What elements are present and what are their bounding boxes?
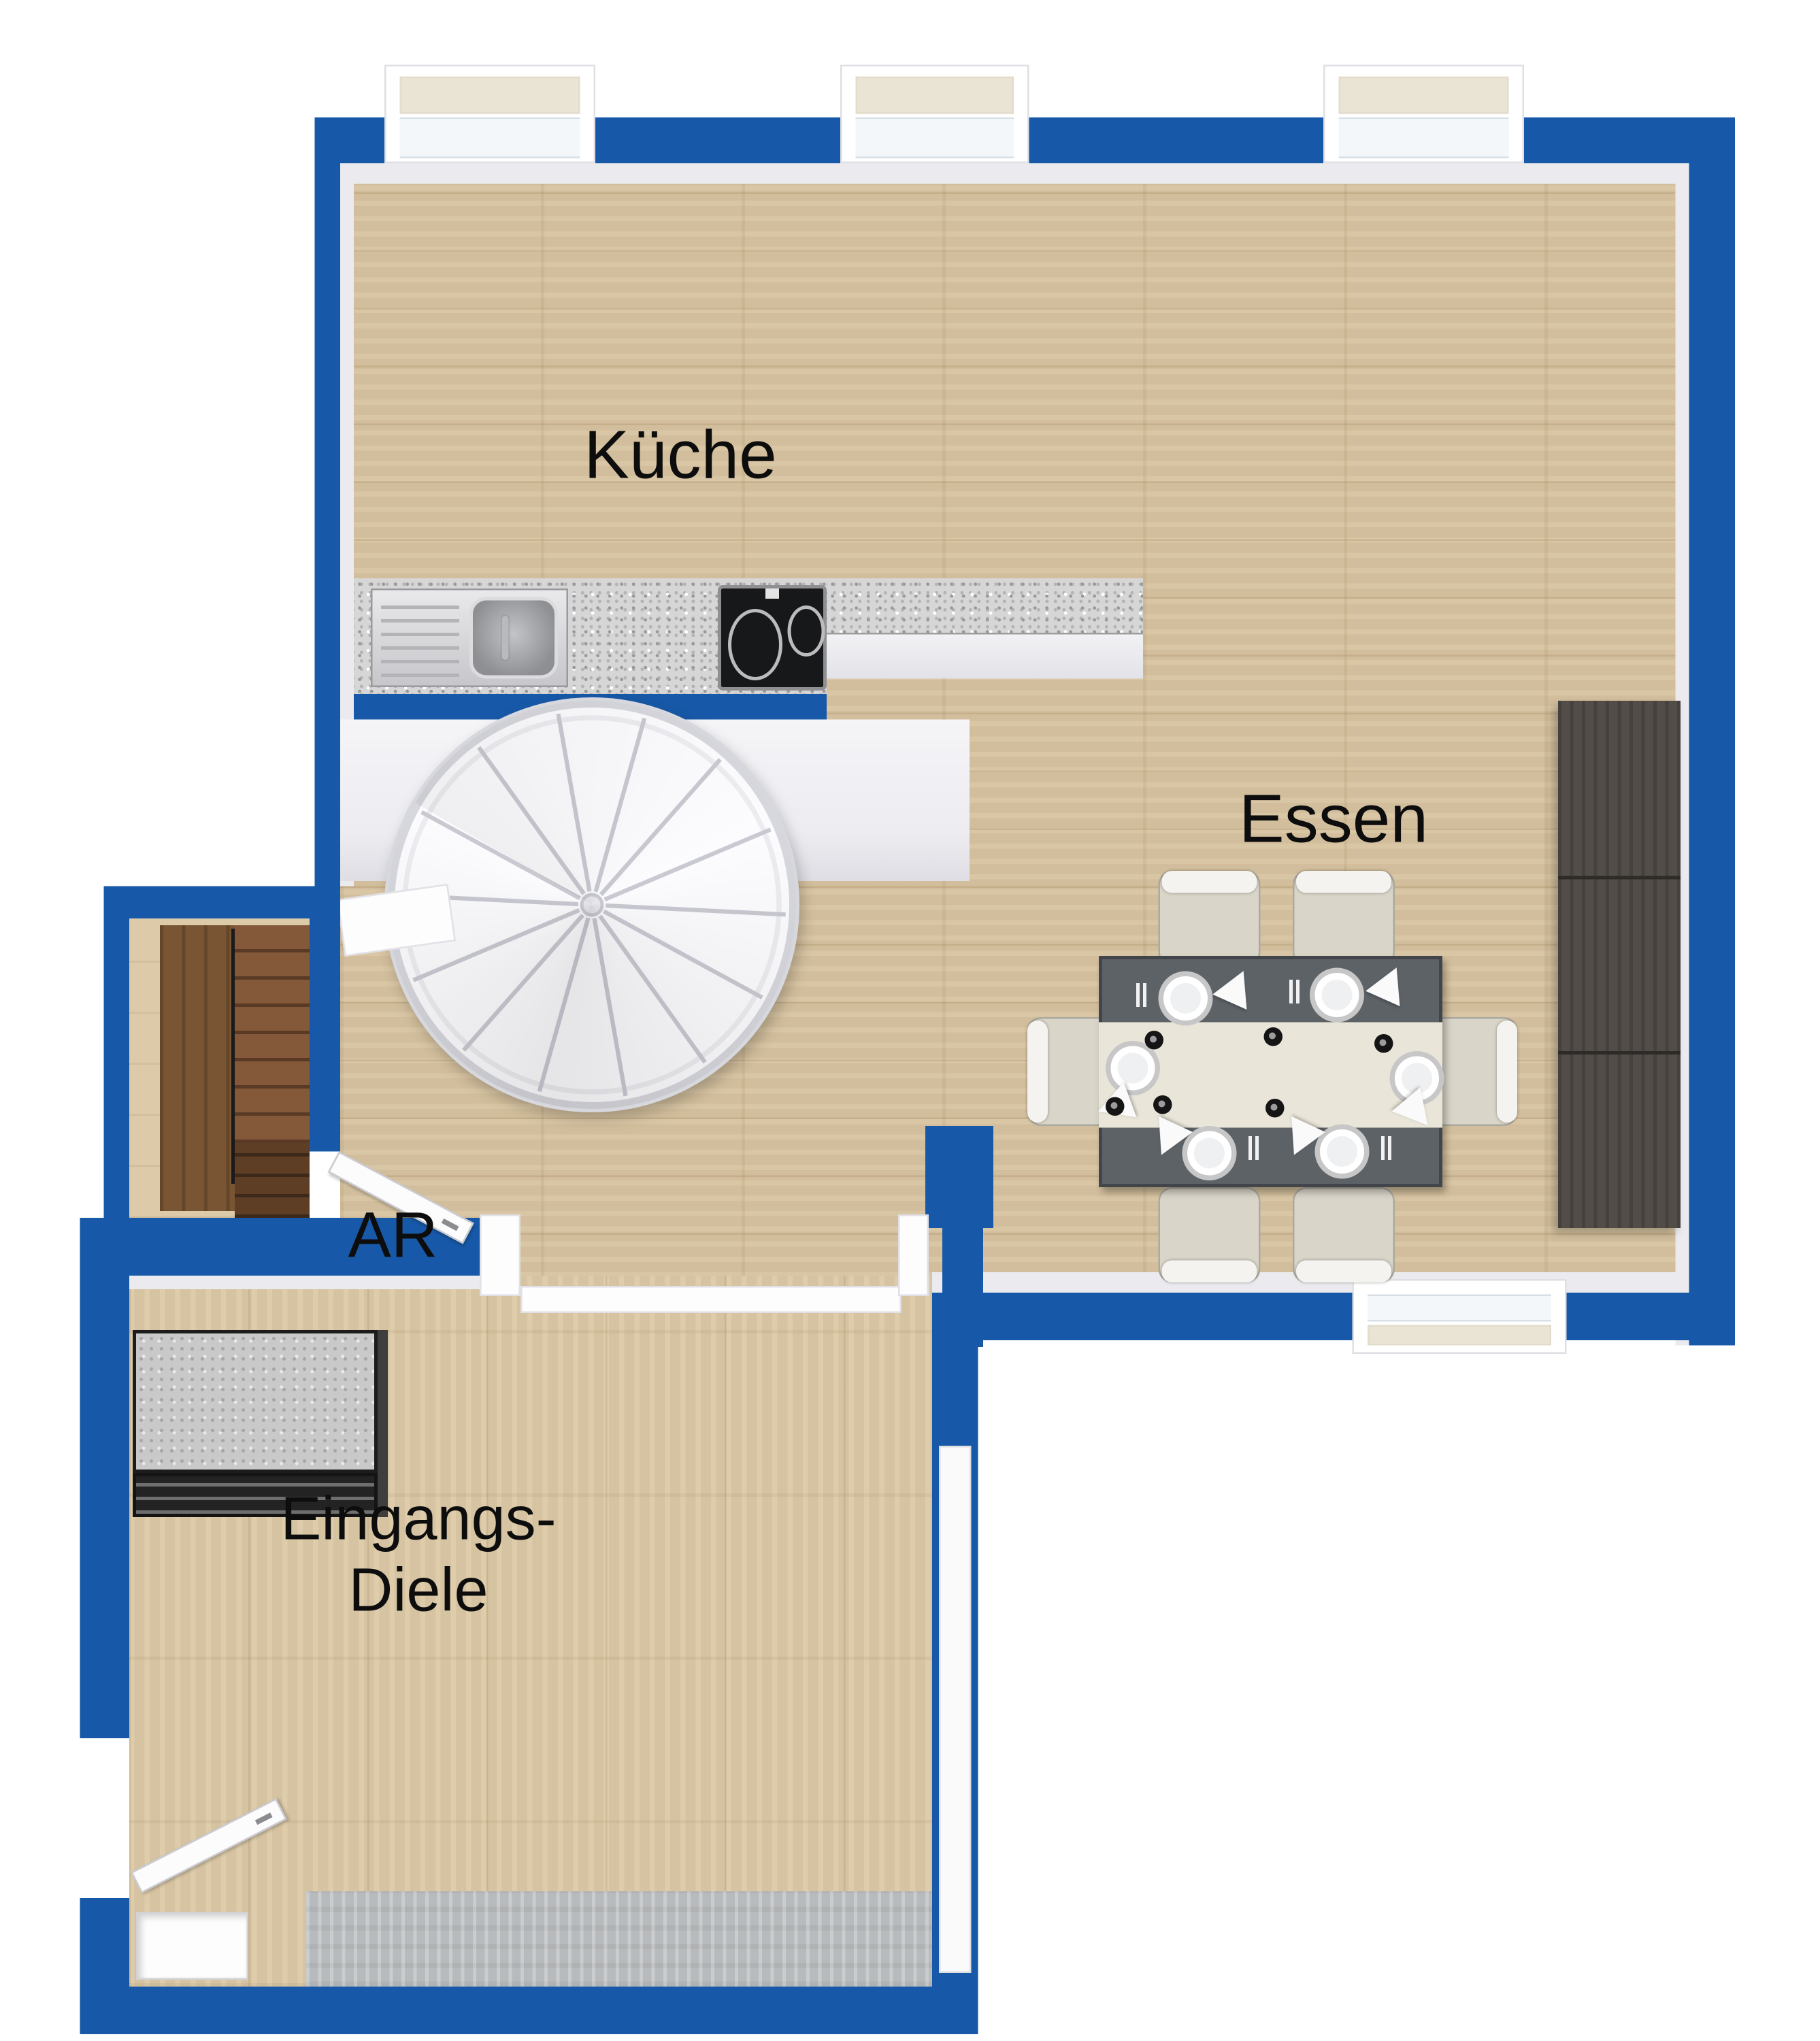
espresso-cup — [1145, 1031, 1164, 1050]
cellar-stairs — [235, 925, 310, 1143]
dining-chair-top-2 — [1293, 871, 1395, 966]
floor-plan-screenshot: Küche Essen AR Eingangs- Diele — [0, 0, 1820, 2041]
room-label-hall-line2: Diele — [248, 1555, 589, 1627]
hall-top-wall-inner-face — [129, 1276, 480, 1289]
sink-bowl — [469, 597, 558, 679]
room-label-kitchen: Küche — [510, 418, 850, 495]
wall-niche — [136, 1912, 248, 1980]
top-wall-inner-face — [340, 163, 1689, 184]
storage-north-wall — [104, 886, 341, 919]
hall-east-wall-frame — [939, 1446, 972, 1973]
cooktop-burner-large — [728, 609, 782, 680]
hall-west-wall — [80, 1218, 130, 2034]
east-wall — [1689, 118, 1736, 1346]
sideboard-divider-1 — [1558, 876, 1681, 880]
dining-sideboard — [1558, 701, 1681, 1228]
stair-handrail — [231, 929, 235, 1184]
cellar-door-panel — [160, 925, 235, 1211]
cutlery — [1381, 1136, 1385, 1160]
storage-east-wall — [310, 918, 340, 1152]
room-label-storage: AR — [333, 1201, 452, 1274]
room-label-hall-line1: Eingangs- — [248, 1483, 589, 1555]
cutlery — [1248, 1136, 1252, 1160]
cellar-stairs-lower — [235, 1143, 310, 1218]
passage-threshold — [520, 1286, 901, 1313]
passage-jamb-right — [898, 1214, 929, 1296]
doorway-pillar — [925, 1126, 993, 1228]
sideboard-divider-2 — [1558, 1051, 1681, 1055]
passage-jamb-left — [480, 1214, 520, 1296]
plate — [1310, 968, 1364, 1023]
plate — [1159, 972, 1213, 1026]
cutlery — [1289, 980, 1293, 1003]
floor-plan: Küche Essen AR Eingangs- Diele — [0, 0, 1820, 2041]
cooktop-controls — [765, 588, 779, 599]
kitchen-counter-right — [827, 578, 1143, 635]
hall-wardrobe-top — [133, 1330, 378, 1473]
window-north-2 — [840, 65, 1029, 163]
dining-chair-top-1 — [1159, 871, 1261, 966]
espresso-cup — [1264, 1027, 1283, 1046]
window-north-3 — [1323, 65, 1524, 163]
doorway-pillar-stem — [942, 1228, 983, 1347]
cooktop-burner-small — [788, 605, 825, 657]
cutlery — [1136, 983, 1140, 1007]
espresso-cup — [1153, 1095, 1172, 1114]
window-north-1 — [384, 65, 595, 163]
room-label-hall: Eingangs- Diele — [248, 1483, 589, 1627]
espresso-cup — [1374, 1034, 1393, 1053]
hall-south-wall — [80, 1987, 978, 2034]
dining-chair-bottom-2 — [1293, 1187, 1395, 1282]
sink-drainboard — [381, 599, 459, 677]
espresso-cup — [1265, 1099, 1285, 1118]
kitchen-cabinet-front — [827, 635, 1143, 679]
dining-chair-bottom-1 — [1159, 1187, 1261, 1282]
front-door-opening — [80, 1738, 130, 1898]
entry-mat — [306, 1891, 932, 1987]
west-wall-upper — [315, 118, 341, 886]
room-label-dining: Essen — [1163, 782, 1504, 859]
window-south-dining — [1353, 1279, 1567, 1354]
dining-south-wall — [932, 1293, 1735, 1340]
sink-faucet — [502, 616, 509, 660]
espresso-cup — [1106, 1097, 1125, 1116]
